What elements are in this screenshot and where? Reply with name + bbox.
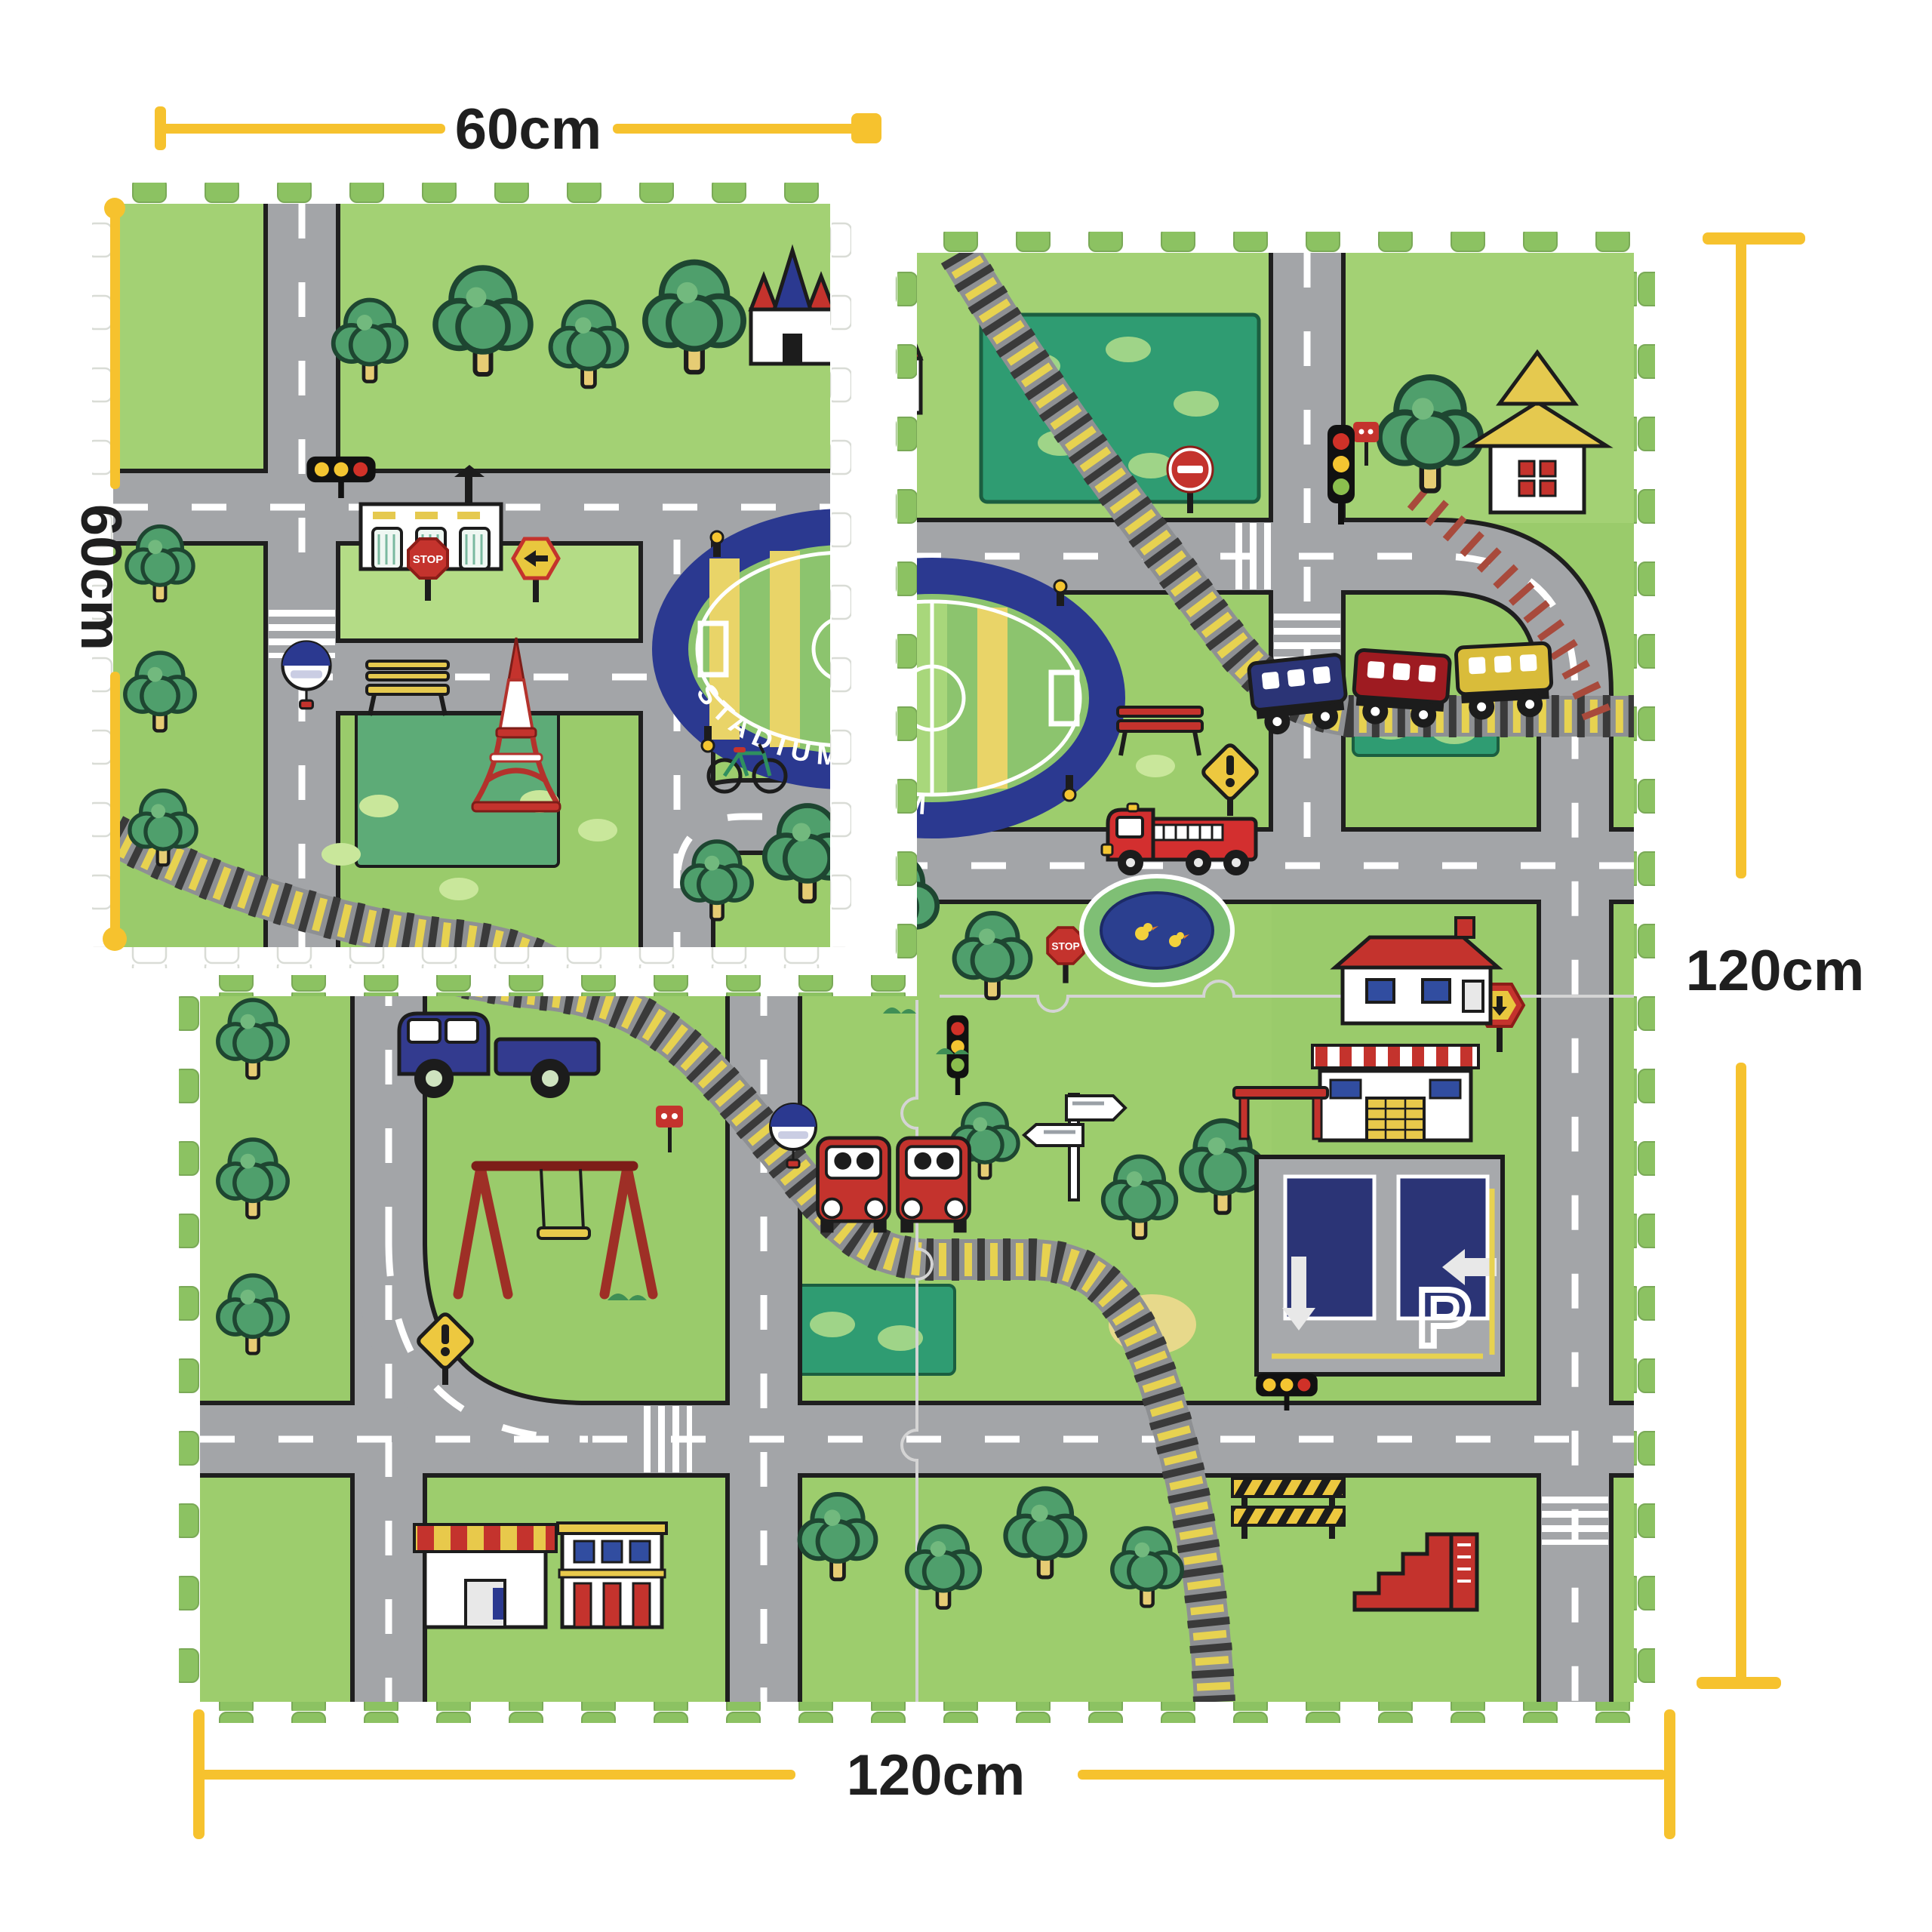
dimension-bottom: 120cm bbox=[193, 1709, 1675, 1839]
dimension-right: 120cm bbox=[1686, 232, 1865, 1689]
product-dimension-diagram: STOP STOP bbox=[0, 0, 1932, 1932]
puzzle-tabs-notch-top bbox=[200, 975, 917, 996]
playmat-scene: STOP STOP bbox=[0, 0, 1932, 1932]
puzzle-tabs-right bbox=[830, 204, 851, 947]
puzzle-tabs-top bbox=[917, 232, 1634, 253]
puzzle-tabs-notch-left bbox=[896, 253, 917, 996]
puzzle-tabs-bottom bbox=[113, 947, 830, 968]
dimension-label-left: 60cm bbox=[69, 504, 133, 651]
puzzle-tabs-left bbox=[179, 996, 200, 1702]
dimension-top: 60cm bbox=[155, 97, 881, 162]
puzzle-tabs-right bbox=[1634, 253, 1655, 1702]
puzzle-tabs-top bbox=[113, 183, 830, 204]
dimension-label-right: 120cm bbox=[1686, 939, 1865, 1003]
dimension-label-bottom: 120cm bbox=[847, 1743, 1026, 1807]
dimension-label-top: 60cm bbox=[455, 97, 601, 162]
puzzle-tabs-bottom bbox=[200, 1702, 1634, 1723]
